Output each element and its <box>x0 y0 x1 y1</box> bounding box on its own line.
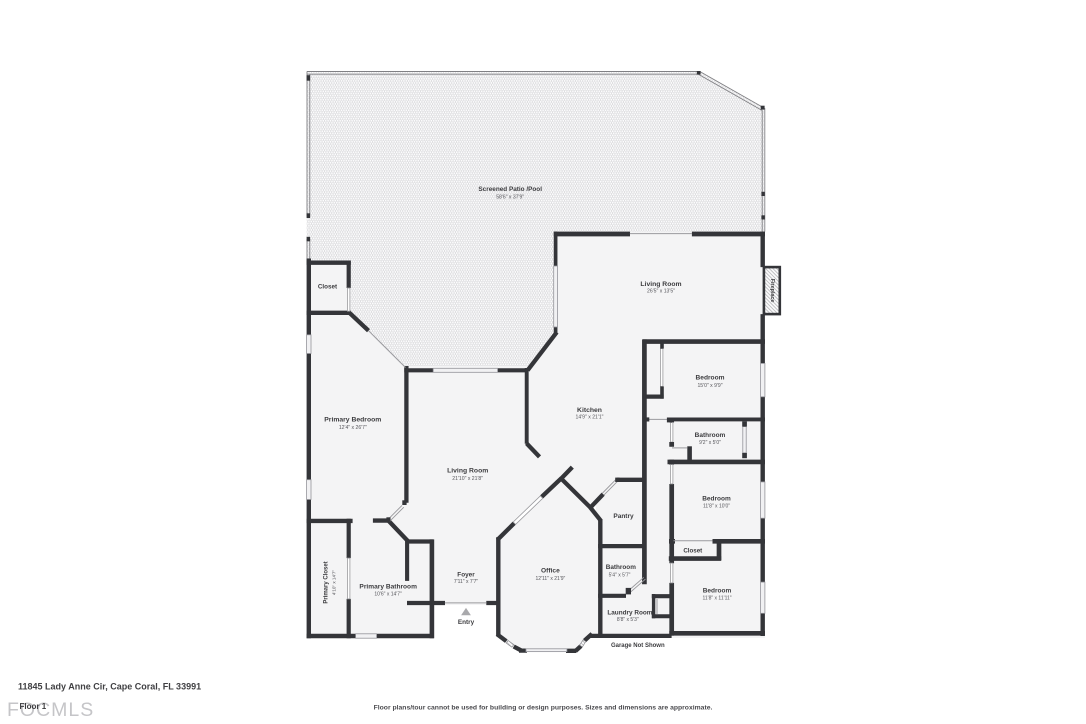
svg-text:4'10" x 14'7": 4'10" x 14'7" <box>331 570 336 596</box>
svg-text:Bedroom: Bedroom <box>703 588 732 595</box>
svg-text:Bedroom: Bedroom <box>702 496 731 503</box>
svg-text:Floor plans/tour cannot be use: Floor plans/tour cannot be used for buil… <box>374 705 713 712</box>
svg-text:Primary Bedroom: Primary Bedroom <box>324 416 381 423</box>
svg-text:Closet: Closet <box>318 284 338 291</box>
svg-text:26'5" x 13'5": 26'5" x 13'5" <box>647 289 675 295</box>
svg-text:Garage Not Shown: Garage Not Shown <box>611 643 665 649</box>
svg-text:Kitchen: Kitchen <box>577 407 602 414</box>
svg-text:Bedroom: Bedroom <box>696 375 725 382</box>
svg-text:11845 Lady Anne Cir, Cape Cora: 11845 Lady Anne Cir, Cape Coral, FL 3399… <box>18 682 201 692</box>
svg-text:Bathroom: Bathroom <box>606 564 636 571</box>
svg-text:Primary Closet: Primary Closet <box>324 561 330 603</box>
svg-text:Primary Bathroom: Primary Bathroom <box>359 583 417 590</box>
svg-text:10'6" x 14'7": 10'6" x 14'7" <box>374 591 402 597</box>
svg-text:Living Room: Living Room <box>447 467 488 474</box>
svg-text:11'8" x 11'11": 11'8" x 11'11" <box>702 596 731 602</box>
svg-text:12'11" x 21'9": 12'11" x 21'9" <box>535 576 565 582</box>
svg-text:Entry: Entry <box>458 619 475 626</box>
svg-text:21'10" x 21'8": 21'10" x 21'8" <box>452 476 483 482</box>
svg-text:12'4" x 26'7": 12'4" x 26'7" <box>339 425 367 431</box>
svg-text:Closet: Closet <box>683 548 702 555</box>
svg-text:Floor 1: Floor 1 <box>20 702 47 711</box>
svg-text:Pantry: Pantry <box>613 513 634 520</box>
svg-text:58'6" x 37'9": 58'6" x 37'9" <box>496 194 524 200</box>
svg-text:15'0" x 9'9": 15'0" x 9'9" <box>697 383 722 389</box>
svg-text:14'9" x 21'1": 14'9" x 21'1" <box>576 415 604 421</box>
svg-text:Bathroom: Bathroom <box>695 432 726 439</box>
svg-text:Foyer: Foyer <box>457 572 475 579</box>
svg-text:Living Room: Living Room <box>640 281 681 288</box>
svg-text:5'4" x 5'7": 5'4" x 5'7" <box>609 573 631 579</box>
svg-text:9'2" x 5'0": 9'2" x 5'0" <box>699 440 721 446</box>
svg-text:Office: Office <box>541 568 560 575</box>
svg-text:Screened Patio /Pool: Screened Patio /Pool <box>478 186 542 193</box>
svg-text:Laundry Room: Laundry Room <box>607 609 652 616</box>
svg-text:11'8" x 10'0": 11'8" x 10'0" <box>703 504 730 510</box>
svg-text:8'8" x 5'3": 8'8" x 5'3" <box>617 617 639 623</box>
svg-text:7'11" x 7'7": 7'11" x 7'7" <box>454 579 478 585</box>
svg-text:Fireplace: Fireplace <box>769 279 775 303</box>
